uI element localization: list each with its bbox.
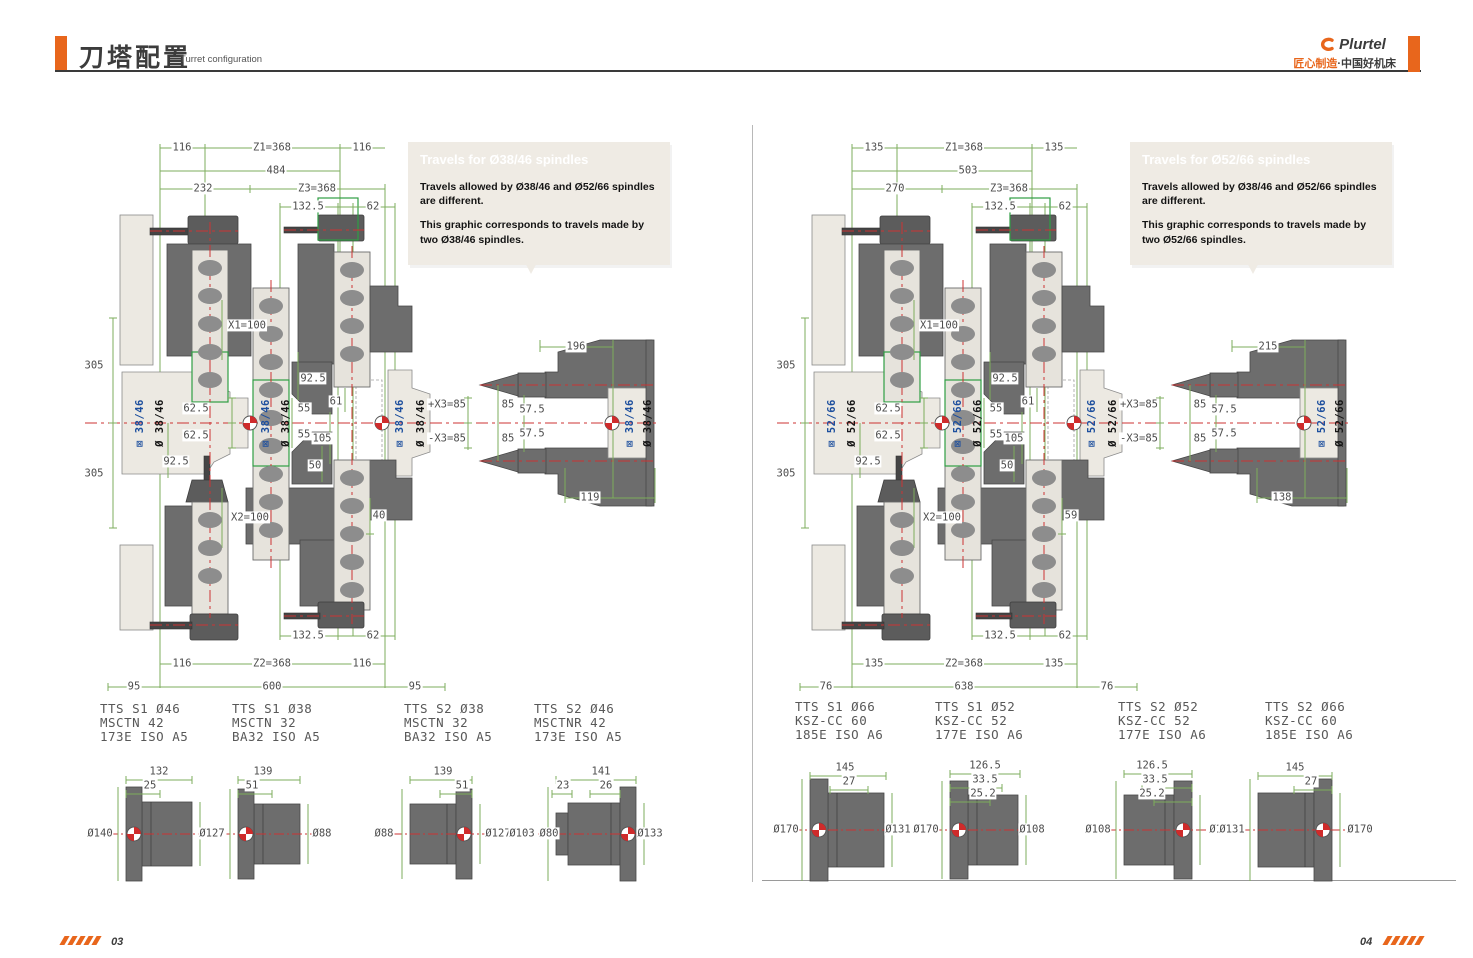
spindle-label-black: Ø 52/66	[1107, 399, 1119, 447]
part-model: TTS S1 Ø66	[795, 700, 883, 714]
part-spec: 173E ISO A5	[100, 730, 188, 744]
spindle-label-black: Ø 52/66	[972, 399, 984, 447]
dim-label-top1_c: Z1=368	[252, 141, 292, 153]
dim-label-x2: X2=100	[230, 511, 270, 523]
part-model: TTS S1 Ø46	[100, 702, 188, 716]
dim-label-d55a: 55	[297, 402, 312, 414]
part-holder: KSZ-CC 60	[1265, 714, 1353, 728]
part-holder: MSCTN 32	[232, 716, 320, 730]
part-spec: 177E ISO A6	[935, 728, 1023, 742]
dim-label-top3_l: 270	[885, 182, 906, 194]
dim-label-d40: 40	[372, 509, 387, 521]
diameter-label: 126.5	[968, 759, 1002, 771]
dim-label-d575b: 57.5	[1210, 427, 1237, 439]
dim-label-d50: 50	[1000, 459, 1015, 471]
spindle-label-black: Ø 38/46	[642, 399, 654, 447]
dim-label-top3_r: Z3=368	[297, 182, 337, 194]
callout-right-para2: This graphic corresponds to travels made…	[1142, 218, 1380, 246]
dim-label-d925a: 92.5	[991, 372, 1018, 384]
dim-label-bot3_c: 638	[954, 680, 975, 692]
diameter-label: 139	[433, 765, 454, 777]
dim-label-d196: 215	[1258, 340, 1279, 352]
dim-label-top1_c: Z1=368	[944, 141, 984, 153]
dim-label-bot2_r: 135	[1044, 657, 1065, 669]
part-label-r3: TTS S2 Ø52 KSZ-CC 52 177E ISO A6	[1118, 700, 1206, 742]
dim-label-bot3_l: 95	[127, 680, 142, 692]
diameter-label: 145	[1285, 761, 1306, 773]
dim-label-d925b: 92.5	[854, 455, 881, 467]
diameter-label: 33.5	[1141, 773, 1168, 785]
dim-label-top4_l: 132.5	[291, 200, 325, 212]
diameter-label: 126.5	[1135, 759, 1169, 771]
dim-label-d55a: 55	[989, 402, 1004, 414]
diameter-label: 27	[842, 775, 857, 787]
part-spec: 185E ISO A6	[1265, 728, 1353, 742]
dim-label-bot2_c: Z2=368	[252, 657, 292, 669]
dim-label-xm: -X3=85	[427, 432, 467, 444]
part-model: TTS S1 Ø52	[935, 700, 1023, 714]
dim-label-bot1_l: 132.5	[291, 629, 325, 641]
part-label-l2: TTS S1 Ø38 MSCTN 32 BA32 ISO A5	[232, 702, 320, 744]
dim-label-top3_r: Z3=368	[989, 182, 1029, 194]
spindle-label-black: Ø 38/46	[415, 399, 427, 447]
diameter-label: Ø170	[772, 823, 799, 835]
dim-label-bot1_r: 62	[1058, 629, 1073, 641]
spindle-label-blue: ⊠ 52/66	[952, 399, 964, 447]
callout-right-title: Travels for Ø52/66 spindles	[1142, 152, 1380, 167]
part-spec: 173E ISO A5	[534, 730, 622, 744]
dim-label-d55b: 55	[297, 428, 312, 440]
part-label-r4: TTS S2 Ø66 KSZ-CC 60 185E ISO A6	[1265, 700, 1353, 742]
dim-label-d119: 119	[580, 491, 601, 503]
dim-label-d55b: 55	[989, 428, 1004, 440]
dim-label-top2: 503	[958, 164, 979, 176]
part-holder: MSCTNR 42	[534, 716, 622, 730]
dim-label-v305a: 305	[84, 359, 105, 371]
dim-label-top4_r: 62	[366, 200, 381, 212]
dim-label-d85b: 85	[501, 432, 516, 444]
callout-right-para1: Travels allowed by Ø38/46 and Ø52/66 spi…	[1142, 180, 1380, 208]
dim-label-xp: +X3=85	[1119, 398, 1159, 410]
spindle-label-blue: ⊠ 38/46	[260, 399, 272, 447]
diameter-label: 25	[143, 779, 158, 791]
diameter-label: 139	[253, 765, 274, 777]
diameter-label: Ø133	[636, 827, 663, 839]
footer-left: 03	[60, 936, 123, 948]
dim-label-top4_r: 62	[1058, 200, 1073, 212]
dim-label-d85a: 85	[1193, 398, 1208, 410]
diameter-label: 23	[556, 779, 571, 791]
callout-left-title: Travels for Ø38/46 spindles	[420, 152, 658, 167]
diameter-label: Ø108	[1018, 823, 1045, 835]
dim-label-x1: X1=100	[227, 319, 267, 331]
dim-label-bot2_r: 116	[352, 657, 373, 669]
dim-label-bot3_r: 95	[408, 680, 423, 692]
tool-dim-label: Ø80	[539, 827, 560, 839]
part-holder: KSZ-CC 60	[795, 714, 883, 728]
dim-label-v305b: 305	[776, 467, 797, 479]
diameter-label: 25.2	[969, 787, 996, 799]
part-model: TTS S2 Ø46	[534, 702, 622, 716]
dim-label-bot3_c: 600	[262, 680, 283, 692]
dim-label-bot3_l: 76	[819, 680, 834, 692]
part-spec: 185E ISO A6	[795, 728, 883, 742]
dim-label-d625b: 62.5	[182, 429, 209, 441]
diameter-label: 51	[455, 779, 470, 791]
page-number-right: 04	[1360, 936, 1372, 948]
part-model: TTS S2 Ø66	[1265, 700, 1353, 714]
part-label-r2: TTS S1 Ø52 KSZ-CC 52 177E ISO A6	[935, 700, 1023, 742]
callout-right: Travels for Ø52/66 spindles Travels allo…	[1130, 142, 1392, 265]
diameter-label: 25.2	[1138, 787, 1165, 799]
dim-label-bot2_c: Z2=368	[944, 657, 984, 669]
dim-label-d575b: 57.5	[518, 427, 545, 439]
part-label-r1: TTS S1 Ø66 KSZ-CC 60 185E ISO A6	[795, 700, 883, 742]
diameter-label: 51	[245, 779, 260, 791]
part-spec: BA32 ISO A5	[232, 730, 320, 744]
diameter-label: Ø140	[86, 827, 113, 839]
diameter-label: Ø88	[374, 827, 395, 839]
diameter-label: Ø131	[884, 823, 911, 835]
part-spec: 177E ISO A6	[1118, 728, 1206, 742]
dim-label-d85a: 85	[501, 398, 516, 410]
dim-label-d925a: 92.5	[299, 372, 326, 384]
dim-label-bot1_r: 62	[366, 629, 381, 641]
dim-label-d85b: 85	[1193, 432, 1208, 444]
spindle-label-blue: ⊠ 52/66	[826, 399, 838, 447]
dim-label-x1: X1=100	[919, 319, 959, 331]
diameter-label: 26	[599, 779, 614, 791]
dim-label-d925b: 92.5	[162, 455, 189, 467]
part-label-l4: TTS S2 Ø46 MSCTNR 42 173E ISO A5	[534, 702, 622, 744]
part-model: TTS S1 Ø38	[232, 702, 320, 716]
dim-label-top2: 484	[266, 164, 287, 176]
diameter-label: 132	[149, 765, 170, 777]
part-holder: KSZ-CC 52	[1118, 714, 1206, 728]
dim-label-top1_l: 135	[864, 141, 885, 153]
diameter-label: 27	[1304, 775, 1319, 787]
part-model: TTS S2 Ø52	[1118, 700, 1206, 714]
spindle-label-blue: ⊠ 38/46	[134, 399, 146, 447]
dim-label-d575a: 57.5	[1210, 403, 1237, 415]
spindle-label-black: Ø 38/46	[280, 399, 292, 447]
dim-label-bot2_l: 135	[864, 657, 885, 669]
spindle-label-black: Ø 52/66	[1334, 399, 1346, 447]
dim-label-top3_l: 232	[193, 182, 214, 194]
part-holder: MSCTN 42	[100, 716, 188, 730]
dim-label-top1_r: 135	[1044, 141, 1065, 153]
dim-label-d61: 61	[329, 395, 344, 407]
spindle-label-blue: ⊠ 38/46	[394, 399, 406, 447]
dim-label-v305b: 305	[84, 467, 105, 479]
dim-label-d40: 59	[1064, 509, 1079, 521]
diameter-label: Ø127	[198, 827, 225, 839]
part-spec: BA32 ISO A5	[404, 730, 492, 744]
dim-label-d625b: 62.5	[874, 429, 901, 441]
callout-left-para2: This graphic corresponds to travels made…	[420, 218, 658, 246]
diameter-label: Ø103	[508, 827, 535, 839]
spindle-label-black: Ø 52/66	[846, 399, 858, 447]
dim-label-top4_l: 132.5	[983, 200, 1017, 212]
dim-label-d625a: 62.5	[874, 402, 901, 414]
part-model: TTS S2 Ø38	[404, 702, 492, 716]
spindle-label-blue: ⊠ 52/66	[1086, 399, 1098, 447]
dim-label-bot3_r: 76	[1100, 680, 1115, 692]
diameter-label: Ø170	[1346, 823, 1373, 835]
dim-label-bot1_l: 132.5	[983, 629, 1017, 641]
callout-left-para1: Travels allowed by Ø38/46 and Ø52/66 spi…	[420, 180, 658, 208]
part-label-l3: TTS S2 Ø38 MSCTN 32 BA32 ISO A5	[404, 702, 492, 744]
diameter-label: 145	[835, 761, 856, 773]
dim-label-xm: -X3=85	[1119, 432, 1159, 444]
dim-label-bot2_l: 116	[172, 657, 193, 669]
catalog-page: 刀塔配置 Turret configuration Plurtel 匠心制造·中…	[0, 0, 1473, 958]
dim-label-d575a: 57.5	[518, 403, 545, 415]
dim-label-top1_r: 116	[352, 141, 373, 153]
page-number-left: 03	[111, 936, 123, 948]
dim-label-d50: 50	[308, 459, 323, 471]
dim-label-d105: 105	[312, 432, 333, 444]
dim-label-d196: 196	[566, 340, 587, 352]
diameter-label: Ø108	[1084, 823, 1111, 835]
dim-label-top1_l: 116	[172, 141, 193, 153]
part-holder: MSCTN 32	[404, 716, 492, 730]
dim-label-xp: +X3=85	[427, 398, 467, 410]
spindle-label-blue: ⊠ 52/66	[1316, 399, 1328, 447]
part-holder: KSZ-CC 52	[935, 714, 1023, 728]
diameter-label: 141	[591, 765, 612, 777]
diameter-label: 33.5	[971, 773, 998, 785]
callout-left: Travels for Ø38/46 spindles Travels allo…	[408, 142, 670, 265]
dim-label-d61: 61	[1021, 395, 1036, 407]
diameter-label: Ø88	[312, 827, 333, 839]
dim-label-d625a: 62.5	[182, 402, 209, 414]
footer-right: 04	[1360, 936, 1423, 948]
dim-label-d119: 138	[1272, 491, 1293, 503]
dim-label-x2: X2=100	[922, 511, 962, 523]
diameter-label: Ø131	[1218, 823, 1245, 835]
part-label-l1: TTS S1 Ø46 MSCTN 42 173E ISO A5	[100, 702, 188, 744]
dim-label-d105: 105	[1004, 432, 1025, 444]
dim-label-v305a: 305	[776, 359, 797, 371]
spindle-label-blue: ⊠ 38/46	[624, 399, 636, 447]
diameter-label: Ø170	[912, 823, 939, 835]
spindle-label-black: Ø 38/46	[154, 399, 166, 447]
